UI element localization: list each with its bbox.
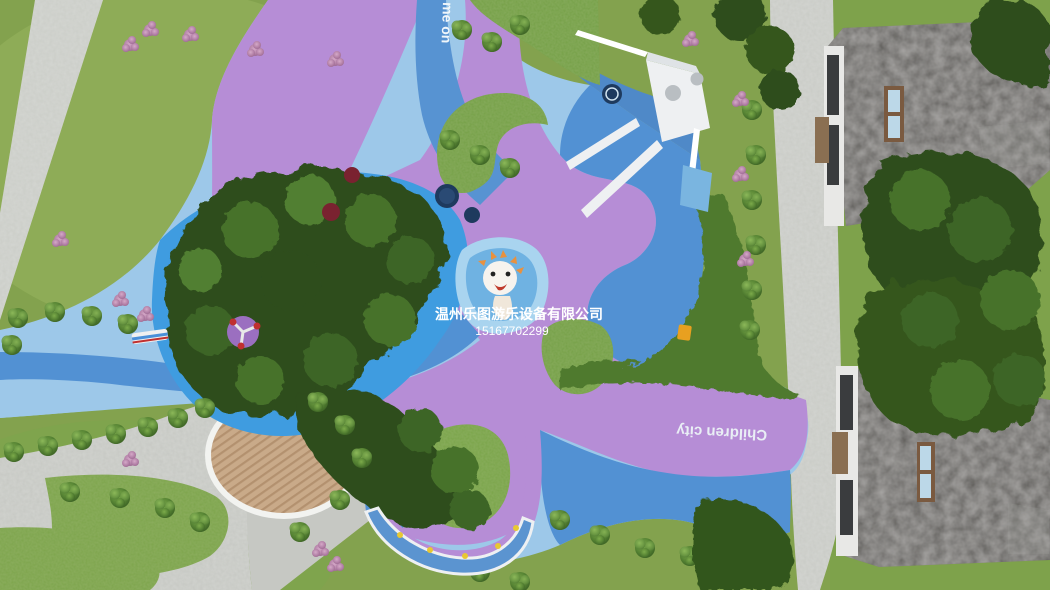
svg-text:温州乐图游乐设备有限公司: 温州乐图游乐设备有限公司	[435, 306, 603, 322]
svg-text:15167702299: 15167702299	[475, 324, 549, 338]
svg-text:me on: me on	[439, 2, 456, 44]
